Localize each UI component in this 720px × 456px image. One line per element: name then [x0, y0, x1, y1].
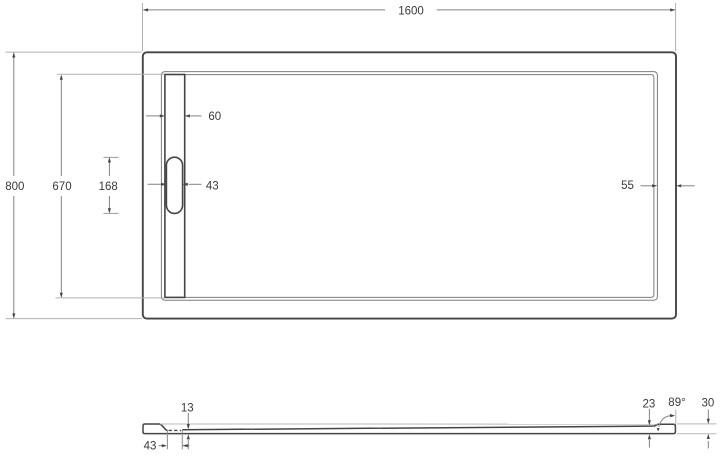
svg-text:30: 30	[702, 398, 715, 410]
svg-text:800: 800	[5, 181, 24, 193]
svg-text:43: 43	[206, 180, 219, 192]
svg-text:23: 23	[643, 399, 656, 411]
svg-text:168: 168	[99, 181, 118, 193]
svg-text:1600: 1600	[398, 6, 424, 18]
svg-text:60: 60	[208, 111, 221, 123]
svg-text:43: 43	[144, 440, 157, 452]
svg-text:13: 13	[181, 403, 194, 415]
svg-text:670: 670	[52, 181, 71, 193]
svg-text:89°: 89°	[668, 397, 685, 409]
svg-text:55: 55	[621, 180, 634, 192]
